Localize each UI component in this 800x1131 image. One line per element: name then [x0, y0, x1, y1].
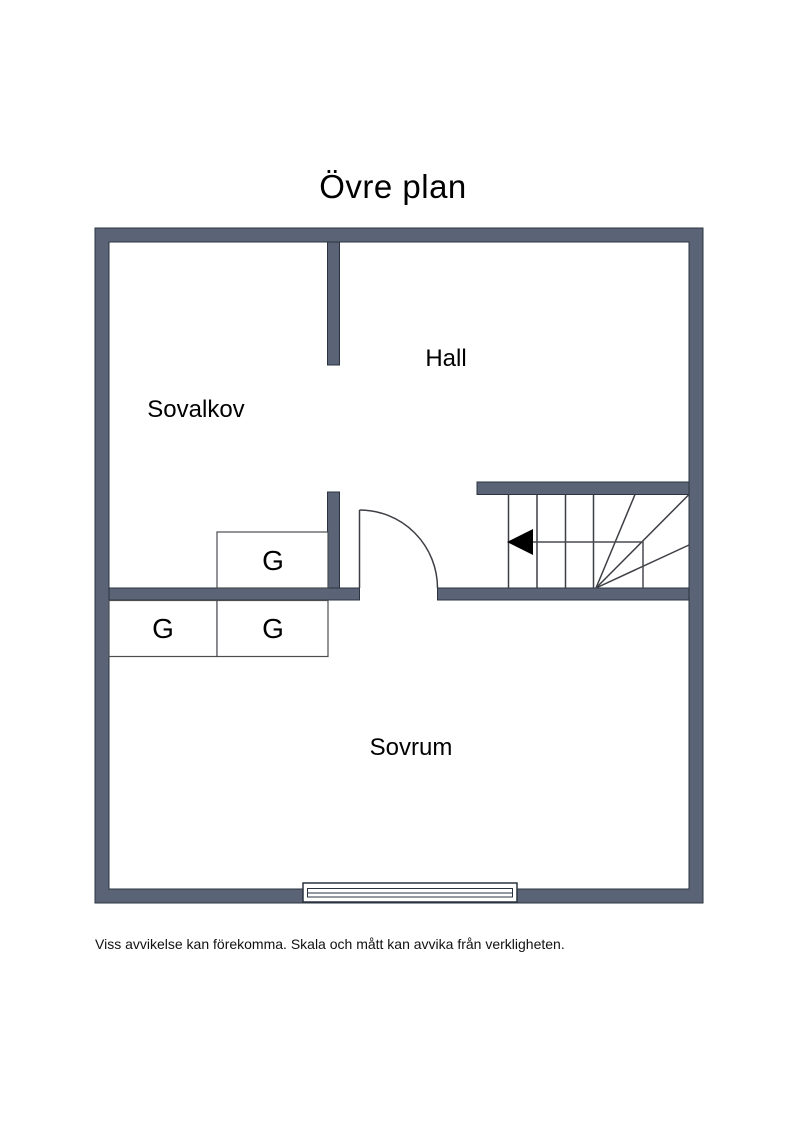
room-label-hall: Hall: [425, 345, 466, 372]
room-label-sovrum: Sovrum: [370, 734, 453, 761]
wall-divider-stub: [328, 492, 340, 589]
wall-stairs-top: [477, 482, 689, 495]
staircase: [507, 495, 689, 589]
outer-wall-frame: [95, 228, 703, 903]
wall-horizontal-right: [438, 588, 690, 600]
wall-horizontal-left: [109, 588, 360, 600]
outer-walls: [95, 228, 703, 903]
closet-label: G: [262, 613, 284, 644]
door-swing: [360, 510, 438, 588]
window-symbol: [303, 883, 517, 902]
floorplan-canvas: G G G Sovalkov Hall Sovrum: [0, 0, 800, 1131]
room-label-sovalkov: Sovalkov: [147, 396, 244, 423]
floorplan-page: Övre plan: [0, 0, 800, 1131]
closet-label: G: [152, 613, 174, 644]
disclaimer-text: Viss avvikelse kan förekomma. Skala och …: [95, 936, 565, 952]
stairs-direction-arrow-icon: [507, 529, 533, 555]
wall-divider-upper: [328, 242, 340, 365]
closet-label: G: [262, 545, 284, 576]
door-arc: [360, 510, 438, 588]
